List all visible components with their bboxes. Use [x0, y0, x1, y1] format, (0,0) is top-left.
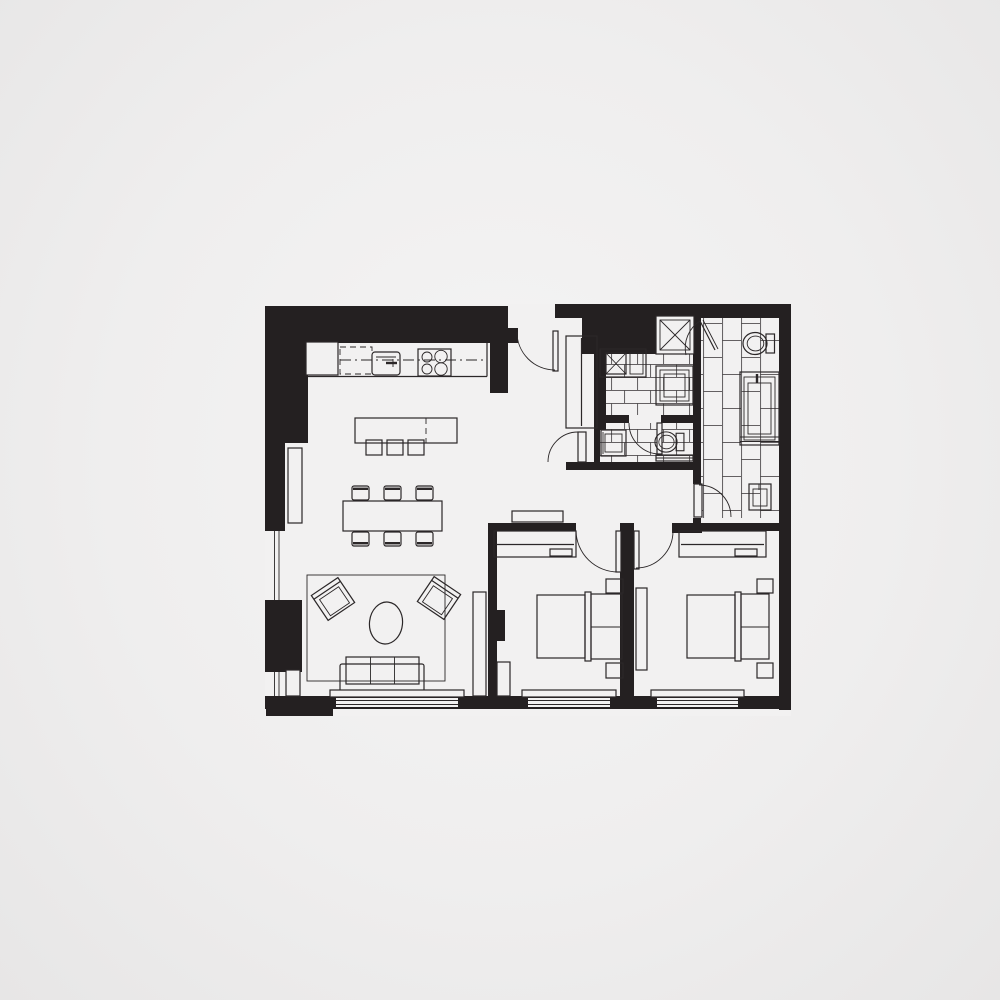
window-jamb — [286, 670, 300, 696]
bedroom-2-window — [651, 690, 744, 707]
wall-column — [488, 610, 505, 641]
living-room-window — [330, 690, 464, 707]
refrigerator — [306, 342, 338, 375]
bedroom-1-window — [522, 690, 616, 707]
fireplace-column — [265, 600, 302, 672]
bottom-windows — [330, 690, 744, 707]
floor-plan — [0, 0, 1000, 1000]
